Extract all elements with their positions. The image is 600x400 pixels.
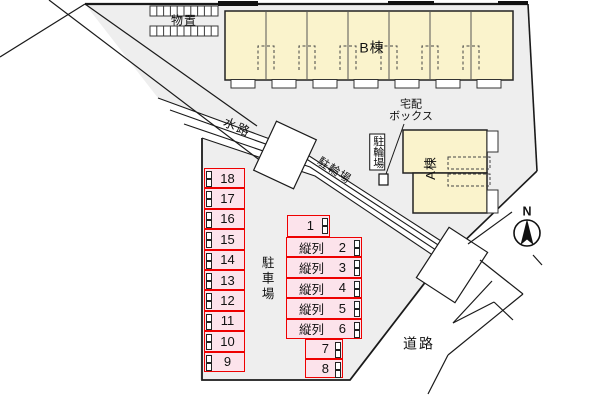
parking-space: 7 — [305, 339, 343, 359]
parking-space: 11 — [204, 311, 245, 331]
site-plan-drawing — [0, 0, 600, 400]
building-b-porches — [231, 80, 501, 89]
parking-lot-label: 駐車場 — [259, 256, 272, 303]
parking-space-tandem: 縦列 2 — [286, 237, 362, 257]
parking-space: 14 — [204, 250, 245, 270]
parking-space: 10 — [204, 331, 245, 351]
compass-north-label: N — [522, 205, 531, 218]
site-plan: 物置 B棟 宅配 ボックス 水路 駐輪場 駐輪場 A棟 駐車場 道路 N 18 … — [0, 0, 600, 400]
parking-space-tandem: 縦列 5 — [286, 298, 362, 318]
parking-space-tandem: 縦列 3 — [286, 257, 362, 277]
delivery-box — [379, 174, 388, 185]
building-a-porch — [487, 190, 498, 213]
parking-space-tandem: 縦列 4 — [286, 278, 362, 298]
parking-space: 16 — [204, 209, 245, 229]
parking-space: 18 — [204, 168, 245, 188]
parking-space: 8 — [305, 359, 343, 379]
bicycle-parking-boxed-label: 駐輪場 — [369, 134, 385, 171]
parking-space: 13 — [204, 270, 245, 290]
parking-space: 9 — [204, 352, 245, 372]
building-a — [403, 130, 498, 213]
parking-space: 17 — [204, 188, 245, 208]
building-a-porch — [487, 131, 498, 152]
building-a-label: A棟 — [424, 156, 438, 180]
parking-space: 15 — [204, 229, 245, 249]
building-b-label: B棟 — [359, 41, 384, 56]
storage-label: 物置 — [171, 15, 197, 28]
parking-space: 1 — [287, 215, 330, 237]
road-label: 道路 — [403, 337, 435, 352]
north-compass-icon — [514, 219, 540, 246]
parking-space-tandem: 縦列 6 — [286, 319, 362, 339]
parking-space: 12 — [204, 290, 245, 310]
delivery-box-label: 宅配 ボックス — [389, 99, 433, 122]
